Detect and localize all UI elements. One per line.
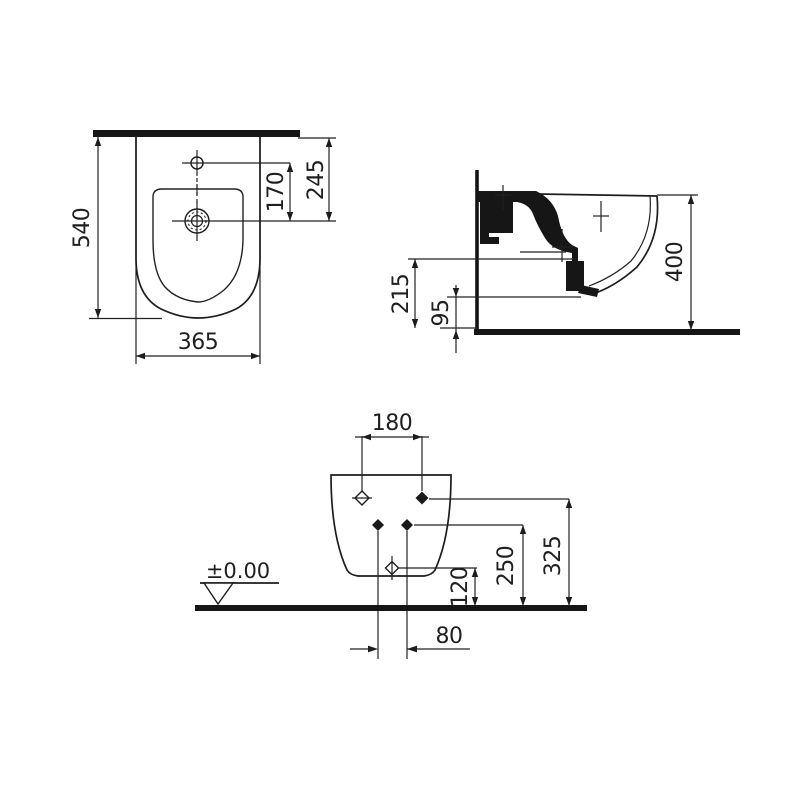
rear-dim-drain-height: 120 — [399, 567, 478, 608]
dim-label-95: 95 — [429, 300, 454, 327]
dim-label-180: 180 — [372, 411, 413, 436]
plan-view: 540 170 245 365 — [70, 130, 336, 364]
side-view: 400 215 95 — [389, 170, 740, 353]
plan-dim-tap-to-drain: 170 — [264, 163, 293, 221]
plan-inner-bowl-outline — [153, 189, 243, 302]
dim-label-325: 325 — [541, 536, 566, 577]
dim-label-540: 540 — [70, 208, 95, 249]
dim-label-245: 245 — [304, 160, 329, 201]
dim-label-250: 250 — [494, 546, 519, 587]
dim-label-80: 80 — [436, 624, 463, 649]
side-inlet-cross — [593, 201, 609, 232]
dim-label-365: 365 — [178, 330, 219, 355]
rear-lower-left-hole — [372, 519, 384, 531]
datum-triangle-icon — [204, 583, 233, 604]
plan-wall-section — [93, 130, 300, 137]
drawing-page: 540 170 245 365 — [0, 0, 800, 800]
plan-dim-depth: 540 — [70, 137, 162, 319]
side-section-fill — [477, 191, 584, 291]
rear-dim-upper-spacing: 180 — [355, 411, 429, 440]
bidet-technical-drawing: 540 170 245 365 — [0, 0, 800, 800]
dim-label-120: 120 — [448, 567, 473, 608]
rear-upper-right-hole — [416, 492, 429, 505]
rear-floor-bar — [195, 605, 587, 611]
rear-view: ±0.00 180 325 250 — [195, 411, 587, 659]
side-dim-bowl-height: 215 — [389, 259, 578, 328]
side-floor-bar — [474, 329, 740, 335]
dim-label-datum: ±0.00 — [206, 559, 270, 583]
dim-label-400: 400 — [663, 242, 688, 283]
plan-dim-wall-to-drain: 245 — [298, 138, 336, 221]
side-dim-overall-height: 400 — [657, 195, 698, 330]
floor-datum-marker: ±0.00 — [200, 559, 279, 604]
dim-label-215: 215 — [389, 274, 414, 315]
rear-dim-lower-spacing: 80 — [350, 624, 470, 652]
rear-lower-right-hole — [401, 519, 413, 531]
side-shell-outer-curve — [593, 196, 658, 294]
side-shell-inner-curve — [589, 196, 650, 286]
dim-label-170: 170 — [264, 172, 289, 213]
plan-dim-width: 365 — [136, 330, 260, 359]
side-shell-foot — [578, 285, 599, 297]
side-dim-outlet-height: 95 — [429, 285, 581, 353]
